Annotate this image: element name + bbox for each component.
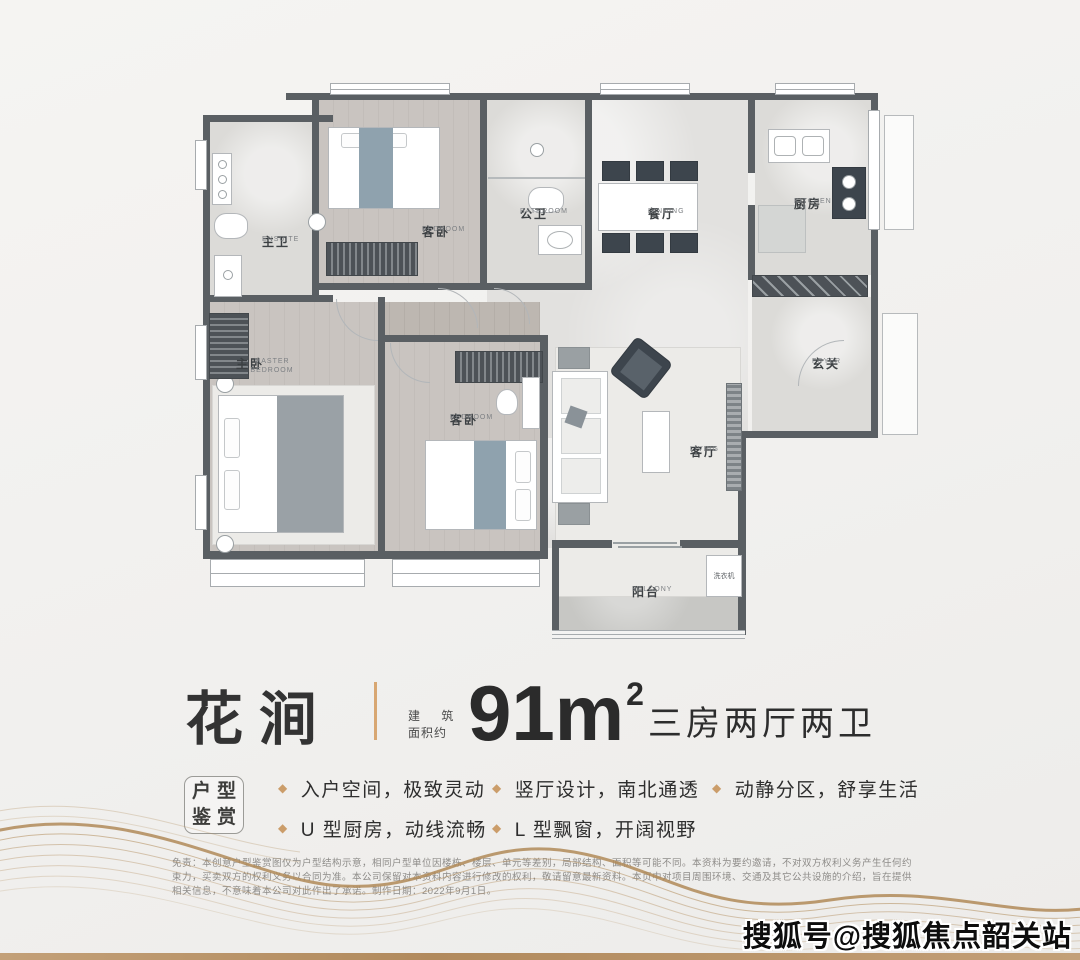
wall bbox=[552, 540, 612, 548]
dining-chair bbox=[602, 233, 630, 253]
wall bbox=[585, 93, 592, 290]
shower-head bbox=[530, 143, 544, 157]
sliding-door bbox=[618, 546, 682, 548]
desk bbox=[522, 377, 540, 429]
dining-chair bbox=[636, 233, 664, 253]
bed bbox=[425, 440, 537, 530]
window bbox=[195, 325, 207, 380]
feature-column-3: ◆ 动静分区，舒享生活 bbox=[712, 776, 919, 816]
watermark-text: 搜狐号@搜狐焦点韶关站 bbox=[743, 913, 1072, 955]
wall bbox=[203, 551, 548, 559]
sofa bbox=[552, 371, 608, 503]
shoe-cabinet bbox=[752, 275, 868, 297]
shower-screen bbox=[488, 177, 585, 179]
window bbox=[195, 475, 207, 530]
bay-window bbox=[210, 559, 365, 587]
side-table bbox=[558, 347, 590, 369]
disclaimer-text: 免责：本创意户型鉴赏图仅为户型结构示意，相同户型单位因楼栋、楼层、单元等差别，局… bbox=[172, 857, 914, 898]
shower-basin bbox=[214, 255, 242, 297]
wall bbox=[480, 93, 487, 290]
diamond-bullet-icon: ◆ bbox=[278, 821, 289, 835]
feature-column-2: ◆ 竖厅设计，南北通透 ◆ L 型飘窗，开阔视野 bbox=[492, 776, 699, 856]
dining-chair bbox=[670, 233, 698, 253]
window bbox=[195, 140, 207, 190]
area-value: 91m2 bbox=[468, 668, 642, 759]
plan-title: 花涧 bbox=[185, 672, 333, 756]
dining-chair bbox=[670, 161, 698, 181]
bay-window bbox=[392, 559, 540, 587]
coffee-table bbox=[642, 411, 670, 473]
nightstand bbox=[216, 535, 234, 553]
feature-item: ◆ 动静分区，舒享生活 bbox=[712, 776, 919, 800]
ac-platform bbox=[884, 115, 914, 230]
bed bbox=[328, 127, 440, 209]
layout-text: 三房两厅两卫 bbox=[648, 696, 876, 745]
window bbox=[600, 83, 690, 95]
wall bbox=[385, 335, 548, 342]
side-table bbox=[558, 503, 590, 525]
feature-item: ◆ L 型飘窗，开阔视野 bbox=[492, 816, 699, 840]
vanity-counter bbox=[212, 153, 232, 205]
gold-divider bbox=[374, 682, 377, 740]
bay-window bbox=[330, 83, 450, 95]
window bbox=[775, 83, 855, 95]
superscript-2: 2 bbox=[626, 676, 644, 712]
feature-item: ◆ 入户空间，极致灵动 bbox=[278, 776, 487, 800]
diamond-bullet-icon: ◆ bbox=[712, 781, 723, 795]
stove bbox=[832, 167, 866, 219]
tv-console bbox=[726, 383, 742, 491]
area-label: 建 筑 面积约 bbox=[408, 708, 462, 743]
sliding-door bbox=[613, 542, 677, 544]
toilet bbox=[214, 213, 248, 239]
dining-chair bbox=[636, 161, 664, 181]
wardrobe bbox=[326, 242, 418, 276]
diamond-bullet-icon: ◆ bbox=[278, 781, 289, 795]
master-bed bbox=[218, 395, 344, 533]
feature-item: ◆ 竖厅设计，南北通透 bbox=[492, 776, 699, 800]
washer-label: 洗衣机 bbox=[714, 571, 735, 581]
poster-page: { "title": { "name": "花涧", "area_label_l… bbox=[0, 0, 1080, 960]
feature-column-1: ◆ 入户空间，极致灵动 ◆ U 型厨房，动线流畅 bbox=[278, 776, 487, 856]
feature-box-label: 户型 鉴赏 bbox=[184, 776, 244, 834]
kitchen-island bbox=[758, 205, 806, 253]
diamond-bullet-icon: ◆ bbox=[492, 781, 503, 795]
bath-vanity bbox=[538, 225, 582, 255]
wall bbox=[312, 283, 487, 290]
door-arc bbox=[438, 288, 478, 328]
exterior-corridor bbox=[882, 313, 918, 435]
feature-item: ◆ U 型厨房，动线流畅 bbox=[278, 816, 487, 840]
balcony-railing bbox=[552, 630, 745, 639]
wall bbox=[745, 431, 878, 438]
washing-machine: 洗衣机 bbox=[706, 555, 742, 597]
window bbox=[868, 110, 880, 230]
wall bbox=[748, 205, 755, 280]
wall bbox=[378, 297, 385, 559]
dining-chair bbox=[602, 161, 630, 181]
chair bbox=[496, 389, 518, 415]
kitchen-sink bbox=[768, 129, 830, 163]
diamond-bullet-icon: ◆ bbox=[492, 821, 503, 835]
wall bbox=[680, 540, 746, 548]
wall bbox=[312, 93, 319, 300]
wall bbox=[552, 548, 559, 635]
floorplan: 洗衣机 主卫ENSUITE 客卧BEDROOM 公卫BATHROOM 餐厅DIN… bbox=[200, 85, 920, 660]
nightstand bbox=[308, 213, 326, 231]
wall bbox=[748, 93, 755, 173]
